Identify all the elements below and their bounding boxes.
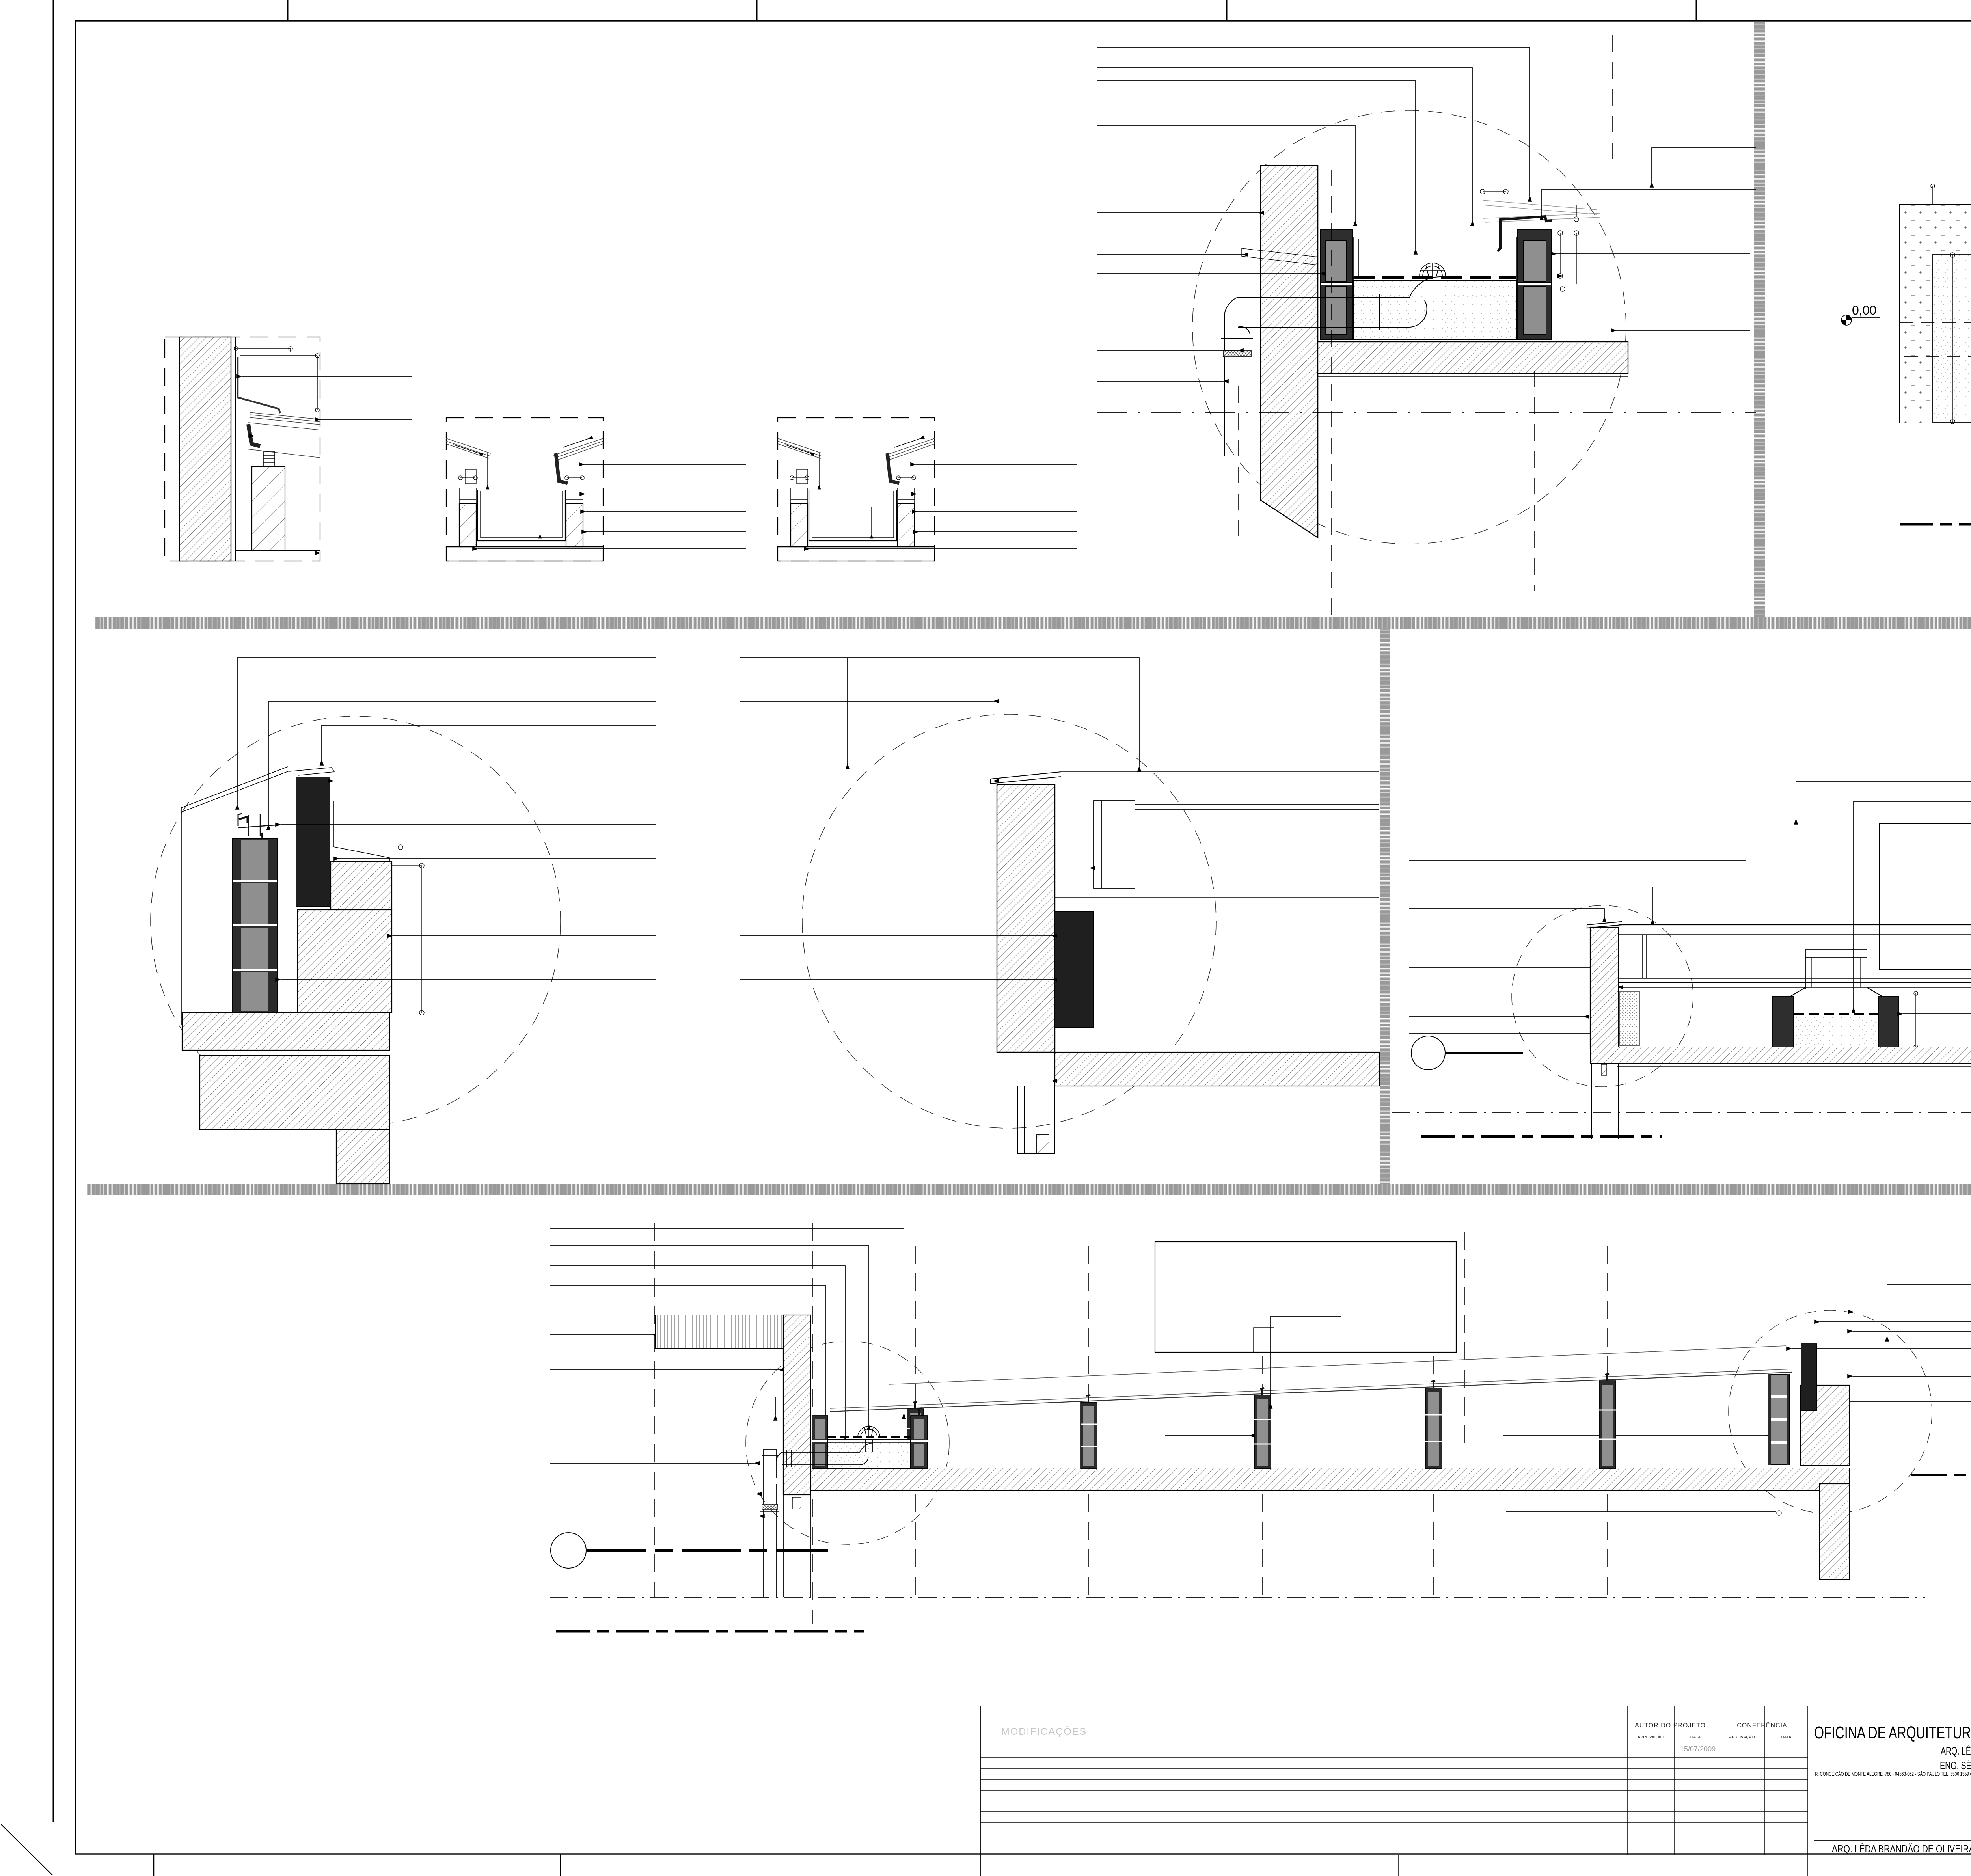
svg-text:DATA: DATA xyxy=(1781,1735,1791,1740)
svg-text:CONFERÊNCIA: CONFERÊNCIA xyxy=(1737,1721,1787,1729)
svg-text:OFICINA DE ARQUITETURA E ESTRU: OFICINA DE ARQUITETURA E ESTRUTURA xyxy=(1814,1723,1971,1742)
svg-text:DATA: DATA xyxy=(1690,1735,1701,1740)
svg-text:APROVAÇÃO: APROVAÇÃO xyxy=(1729,1734,1755,1740)
svg-text:R. CONCEIÇÃO DE MONTE ALEGRE,: R. CONCEIÇÃO DE MONTE ALEGRE, 780 · 0456… xyxy=(1815,1771,1971,1777)
svg-text:ARQ. LÊDA BRANDÃO DE OLIVEIR: ARQ. LÊDA BRANDÃO DE OLIVEIRA CREA 06006… xyxy=(1832,1843,1971,1855)
svg-text:APROVAÇÃO: APROVAÇÃO xyxy=(1638,1734,1664,1740)
svg-text:AUTOR DO PROJETO: AUTOR DO PROJETO xyxy=(1635,1722,1706,1729)
svg-text:MODIFICAÇÕES: MODIFICAÇÕES xyxy=(1001,1726,1087,1737)
svg-text:ARQ. LÊDA BRANDÃO DE OLIVEIR: ARQ. LÊDA BRANDÃO DE OLIVEIRA xyxy=(1941,1745,1971,1757)
svg-text:ENG. SÉRGIO JOSÉ B DE OLIVEI: ENG. SÉRGIO JOSÉ B DE OLIVEIRA xyxy=(1940,1760,1971,1772)
svg-text:15/07/2009: 15/07/2009 xyxy=(1680,1745,1716,1753)
svg-text:0,00: 0,00 xyxy=(1852,303,1876,317)
